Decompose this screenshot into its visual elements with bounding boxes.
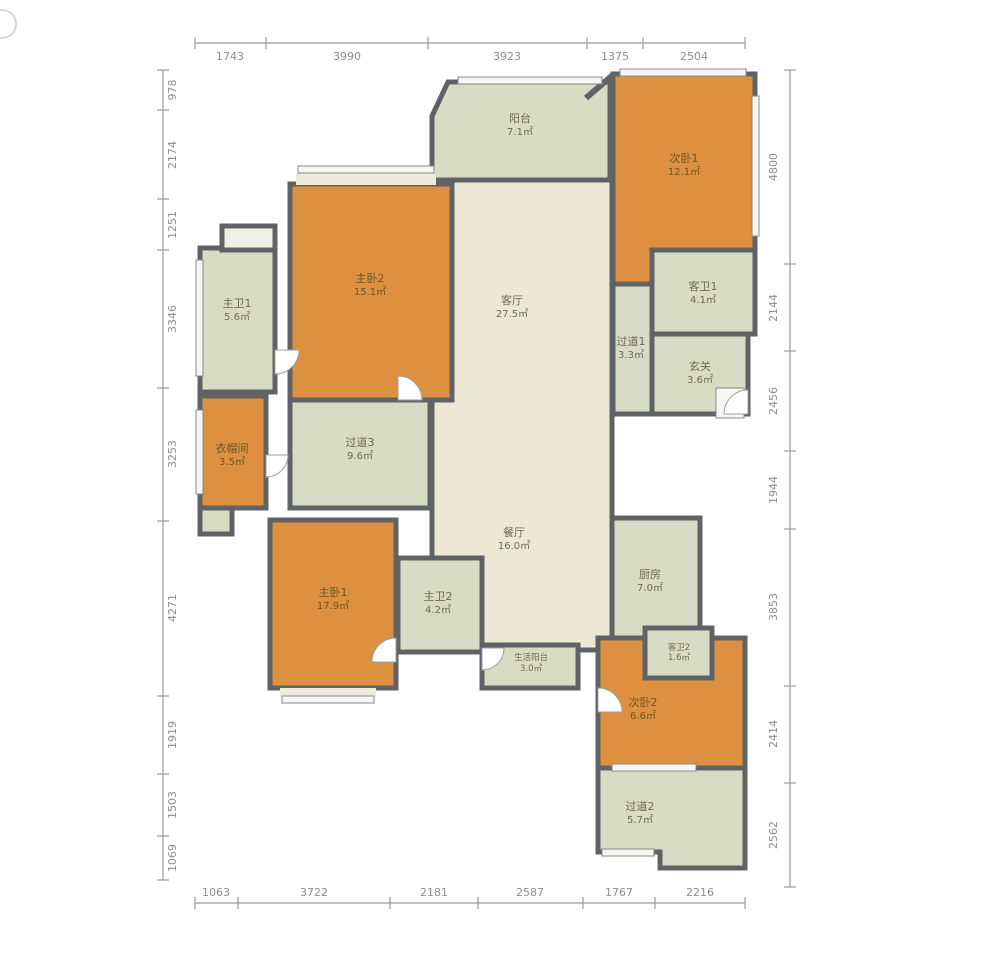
room-label: 过道2 [626,799,655,813]
dim-label: 2587 [516,886,544,899]
floor-plan-svg: 阳台 7.1㎡ 次卧1 12.1㎡ 客卫1 4.1㎡ 过道1 3.3㎡ 玄关 3… [0,0,1000,968]
bay-sill [296,173,436,185]
room-area: 3.0㎡ [520,664,543,674]
dim-label: 4271 [166,594,179,622]
door-arc [266,455,288,477]
dim-label: 3346 [166,305,179,333]
room-label: 主卫2 [424,590,453,603]
dim-label: 4800 [767,153,780,181]
dim-label: 3253 [166,440,179,468]
dim-label: 1069 [166,844,179,872]
room-area: 9.6㎡ [347,450,373,462]
room-label: 主卫1 [223,297,252,310]
dim-label: 2414 [767,720,780,748]
floor-plan-canvas: 阳台 7.1㎡ 次卧1 12.1㎡ 客卫1 4.1㎡ 过道1 3.3㎡ 玄关 3… [0,0,1000,968]
dim-label: 3923 [493,50,521,63]
dim-label: 2174 [166,141,179,169]
room-area: 5.7㎡ [627,814,653,826]
room-label: 次卧1 [670,151,699,165]
dim-label: 1944 [767,476,780,504]
dim-label: 2144 [767,294,780,322]
room-label: 主卧1 [319,586,348,599]
room-label: 主卧2 [356,272,385,285]
dim-label: 1503 [166,791,179,819]
room-area: 4.1㎡ [690,294,716,306]
room-label: 客卫1 [689,279,718,293]
room-area: 3.3㎡ [618,349,644,361]
window [298,166,434,173]
room-area: 3.5㎡ [219,456,245,468]
duct-cell [200,508,232,534]
window [752,96,759,236]
room-area: 27.5㎡ [496,308,528,320]
dim-label: 978 [166,80,179,101]
room-area: 17.9㎡ [317,600,349,612]
room-area: 5.6㎡ [224,311,250,323]
room-label: 厨房 [639,568,661,581]
room-label: 阳台 [509,111,531,125]
dim-label: 1767 [605,886,633,899]
dim-label: 1063 [202,886,230,899]
room-label: 衣帽间 [216,441,249,455]
room-label: 生活阳台 [514,652,548,663]
window [458,77,602,84]
dim-label: 2562 [767,821,780,849]
room-area: 3.6㎡ [687,374,713,386]
window [620,69,746,76]
dim-label: 1375 [601,50,629,63]
window [196,410,203,494]
room-label: 玄关 [689,359,711,373]
room-label: 过道1 [617,334,646,348]
rooms-group [200,74,755,868]
dim-label: 3853 [767,593,780,621]
room-label: 客厅 [501,293,523,307]
room-area: 6.6㎡ [630,710,656,722]
window [282,696,374,703]
dim-label: 2181 [420,886,448,899]
room-label: 过道3 [346,435,375,449]
room-area: 1.6㎡ [668,653,691,663]
dim-label: 1251 [166,211,179,239]
dim-label: 3722 [300,886,328,899]
window [196,260,203,376]
dim-label: 1919 [166,721,179,749]
room-area: 12.1㎡ [668,166,700,178]
dim-label: 2504 [680,50,708,63]
room-label: 餐厅 [503,525,525,539]
room-label: 客卫2 [668,642,690,653]
edge-control-circle-icon [0,10,16,38]
room-area: 7.1㎡ [507,126,533,138]
room-area: 7.0㎡ [637,582,663,594]
window [612,764,696,771]
room-area: 15.1㎡ [354,286,386,298]
window [602,849,654,856]
room-area: 4.2㎡ [425,604,451,616]
dim-label: 1743 [216,50,244,63]
wall-niche [222,226,275,250]
room-corridor-1 [613,284,652,414]
room-area: 16.0㎡ [498,540,530,552]
room-label: 次卧2 [629,695,658,709]
dim-label: 3990 [333,50,361,63]
dim-label: 2216 [686,886,714,899]
dim-label: 2456 [767,387,780,415]
